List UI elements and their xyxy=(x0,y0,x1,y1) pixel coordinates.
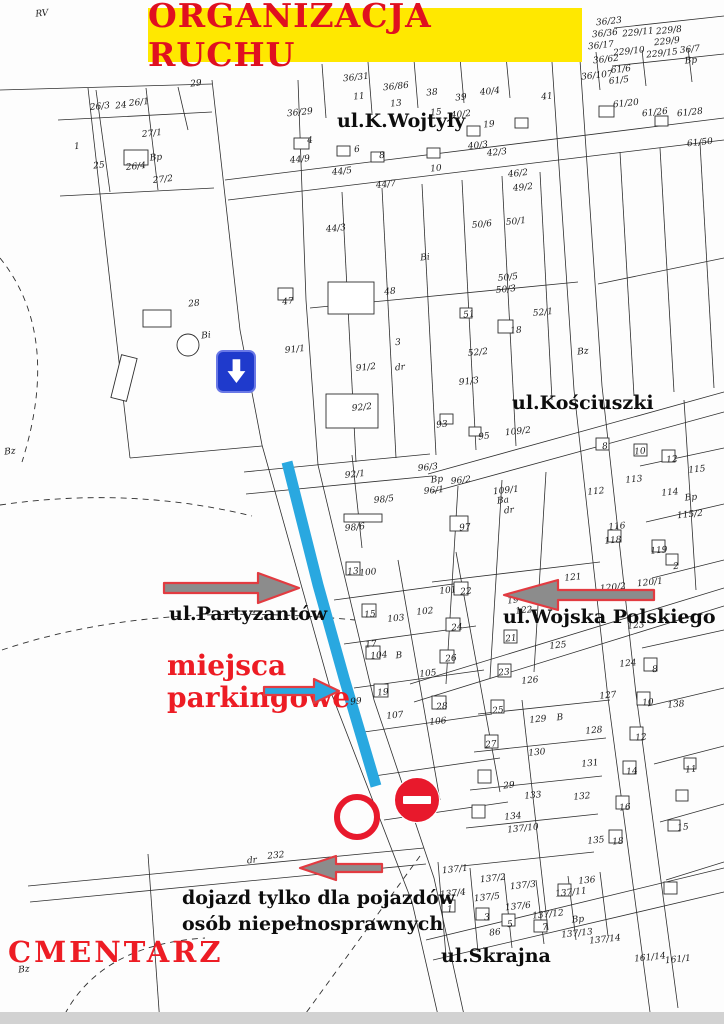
parcel-label: 38 xyxy=(426,87,438,98)
parcel-label: Bi xyxy=(201,331,211,342)
street-label-wojtyly: ul.K.Wojtyły xyxy=(337,110,465,132)
parcel-label: 96/2 xyxy=(450,475,471,487)
parcel-label: 102 xyxy=(416,606,434,618)
parcel-label: 27/1 xyxy=(141,128,162,140)
parcel-label: Bp xyxy=(430,474,443,485)
parcel-label: 39 xyxy=(455,92,467,103)
parcel-label: 10 xyxy=(642,697,654,708)
parcel-label: 50/1 xyxy=(505,216,526,228)
parcel-label: 96/1 xyxy=(423,485,444,497)
parcel-label: 10 xyxy=(430,163,442,174)
parcel-label: 23 xyxy=(498,667,510,678)
direction-arrow-partyzantow-icon xyxy=(162,570,302,606)
parcel-label: 11 xyxy=(353,91,365,102)
parcel-label: 44/3 xyxy=(325,223,346,235)
parcel-label: Bz xyxy=(4,446,16,457)
parcel-label: 119 xyxy=(650,545,668,557)
parcel-label: 44/7 xyxy=(375,179,396,191)
parcel-label: 4 xyxy=(307,136,314,147)
parcel-label: 97 xyxy=(459,522,471,533)
parcel-label: 13 xyxy=(347,566,359,577)
parcel-label: 46/2 xyxy=(507,168,528,180)
parcel-label: dr xyxy=(503,506,514,517)
parcel-label: 28 xyxy=(188,298,200,309)
parcel-label: 113 xyxy=(625,474,643,486)
parcel-label: 135 xyxy=(587,835,605,847)
parcel-label: 11 xyxy=(685,764,697,775)
parcel-label: 14 xyxy=(626,766,638,777)
parcel-label: 125 xyxy=(549,640,567,652)
parcel-label: 129 xyxy=(529,714,547,726)
parcel-label: 92/2 xyxy=(351,402,372,414)
parcel-label: 8 xyxy=(379,151,386,162)
parcel-label: 232 xyxy=(267,850,285,862)
parcel-label: 104 xyxy=(370,650,388,662)
parcel-label: 8 xyxy=(652,665,659,676)
parcel-label: B xyxy=(556,713,564,724)
parcel-label: 118 xyxy=(604,535,622,547)
parcel-label: Ba xyxy=(497,495,510,506)
parcel-label: 50/5 xyxy=(497,272,518,284)
parcel-label: 26 xyxy=(445,653,457,664)
disabled-access-arrow-icon xyxy=(296,854,384,882)
parcel-label: 19 xyxy=(377,687,389,698)
parcel-label: 48 xyxy=(384,286,396,297)
parcel-label: 12 xyxy=(635,732,647,743)
parcel-label: 24 xyxy=(451,622,463,633)
disabled-access-label: dojazd tylko dla pojazdów osób niepełnos… xyxy=(182,886,455,937)
parcel-label: 51 xyxy=(463,309,475,320)
parcel-label: 36/7 xyxy=(679,44,700,56)
parcel-label: 28 xyxy=(436,701,448,712)
parcel-label: 101 xyxy=(439,585,457,597)
parcel-label: 105 xyxy=(419,668,437,680)
parcel-label: 15 xyxy=(677,822,689,833)
down-arrow-icon xyxy=(219,355,253,389)
parcel-label: 1 xyxy=(74,142,81,153)
parcel-label: 49/2 xyxy=(512,182,533,194)
parcel-label: Bz xyxy=(577,346,589,357)
parcel-label: 91/2 xyxy=(355,362,376,374)
parcel-label: Bp xyxy=(684,55,697,66)
parcel-label: 114 xyxy=(661,487,679,499)
parcel-label: 10 xyxy=(634,446,646,457)
parcel-label: 26/3 xyxy=(89,101,110,113)
parcel-label: 12 xyxy=(666,454,678,465)
access-label-line1: dojazd tylko dla pojazdów xyxy=(182,886,455,912)
parcel-label: 41 xyxy=(541,91,553,102)
parcel-label: 18 xyxy=(612,836,624,847)
parcel-label: 17 xyxy=(365,639,377,650)
parcel-label: 25 xyxy=(93,160,105,171)
parcel-label: 50/6 xyxy=(471,219,492,231)
parcel-label: 40/4 xyxy=(479,86,500,98)
parcel-label: 136 xyxy=(578,875,596,887)
street-label-partyzantow: ul.Partyzantów xyxy=(169,603,327,625)
parcel-label: 44/9 xyxy=(289,154,310,166)
parcel-label: 25 xyxy=(492,705,504,716)
one-way-sign xyxy=(216,350,256,393)
parcel-label: 8 xyxy=(602,442,609,453)
parcel-label: Bp xyxy=(571,914,584,925)
parcel-label: RV xyxy=(35,8,49,19)
parcel-label: 103 xyxy=(387,613,405,625)
parcel-label: 3 xyxy=(395,338,402,349)
parcel-label: 15 xyxy=(364,609,376,620)
parcel-label: 115 xyxy=(688,464,706,476)
parcel-label: 107 xyxy=(386,710,404,722)
parcel-label: 50/3 xyxy=(495,284,516,296)
parcel-label: 27/2 xyxy=(152,174,173,186)
parcel-label: 13 xyxy=(390,98,402,109)
parcel-label: Bi xyxy=(420,253,430,264)
parcel-label: 52/2 xyxy=(467,347,488,359)
no-entry-bar-icon xyxy=(403,796,431,804)
parcel-label: 29 xyxy=(190,78,202,89)
parcel-label: 99 xyxy=(350,696,362,707)
parcel-label: 61/5 xyxy=(608,75,629,87)
title-banner: ORGANIZACJA RUCHU xyxy=(148,8,582,62)
parcel-label: 7 xyxy=(542,923,549,934)
parcel-label: 2 xyxy=(673,562,680,573)
parcel-label: 100 xyxy=(359,567,377,579)
parcel-label: 112 xyxy=(587,486,605,498)
parcel-label: 16 xyxy=(619,802,631,813)
traffic-plan-map: RV2926/32426/127/112526/4Bp27/228BiBzBz3… xyxy=(0,0,724,1024)
parcel-label: dr xyxy=(246,856,257,867)
parcel-label: 133 xyxy=(524,790,542,802)
parcel-label: 98/6 xyxy=(344,522,365,534)
access-label-line2: osób niepełnosprawnych xyxy=(182,912,455,938)
parcel-label: 18 xyxy=(510,325,522,336)
direction-arrow-wojska-polskiego-icon xyxy=(500,578,656,612)
parcel-label: 91/3 xyxy=(458,376,479,388)
parcel-label: 44/5 xyxy=(331,166,352,178)
parcel-label: 5 xyxy=(507,920,514,931)
parcel-label: 21 xyxy=(505,633,517,644)
parcel-label: B xyxy=(395,651,403,662)
parcel-label: 3 xyxy=(484,913,491,924)
parcel-label: 47 xyxy=(282,296,294,307)
parcel-label: 131 xyxy=(581,758,599,770)
parcel-label: 128 xyxy=(585,725,603,737)
parcel-label: 24 xyxy=(115,100,127,111)
parcel-label: 124 xyxy=(619,658,637,670)
parcel-label: 98/5 xyxy=(373,494,394,506)
street-label-skrajna: ul.Skrajna xyxy=(441,945,551,967)
cemetery-label: CMENTARZ xyxy=(8,936,224,969)
parcel-label: 126 xyxy=(521,675,539,687)
parcel-label: 42/3 xyxy=(486,147,507,159)
street-label-kosciuszki: ul.Kościuszki xyxy=(512,392,654,414)
parcel-label: 93 xyxy=(436,419,448,430)
parcel-label: 130 xyxy=(528,747,546,759)
page-title: ORGANIZACJA RUCHU xyxy=(148,0,582,74)
parcel-label: 138 xyxy=(667,699,685,711)
parcel-label: 134 xyxy=(504,811,522,823)
parcel-label: 26/1 xyxy=(128,97,149,109)
parcel-label: 26/4 xyxy=(125,161,146,173)
parcel-label: Bp xyxy=(684,492,697,503)
parcel-label: 22 xyxy=(460,586,472,597)
parcel-label: 92/1 xyxy=(344,469,365,481)
no-entry-sign xyxy=(394,777,440,823)
parcel-label: 27 xyxy=(485,739,497,750)
parcel-label: 96/3 xyxy=(417,462,438,474)
parcel-label: 127 xyxy=(599,690,617,702)
parcel-label: 29 xyxy=(503,780,515,791)
parcel-label: 116 xyxy=(608,521,626,533)
parcel-label: 95 xyxy=(478,431,490,442)
prohibition-sign xyxy=(334,794,380,840)
parcel-label: 19 xyxy=(483,119,495,130)
parcel-label: 91/1 xyxy=(284,344,305,356)
parking-direction-arrow-icon xyxy=(262,676,342,706)
parcel-label: 52/1 xyxy=(532,307,553,319)
parcel-label: 132 xyxy=(573,791,591,803)
parcel-label: 86 xyxy=(489,927,501,938)
scan-edge xyxy=(0,1012,724,1024)
parcel-label: 40/3 xyxy=(467,140,488,152)
parcel-label: Bp xyxy=(149,152,162,163)
parcel-label: 6 xyxy=(354,145,361,156)
parcel-label: dr xyxy=(394,363,405,374)
parcel-label: 106 xyxy=(429,716,447,728)
